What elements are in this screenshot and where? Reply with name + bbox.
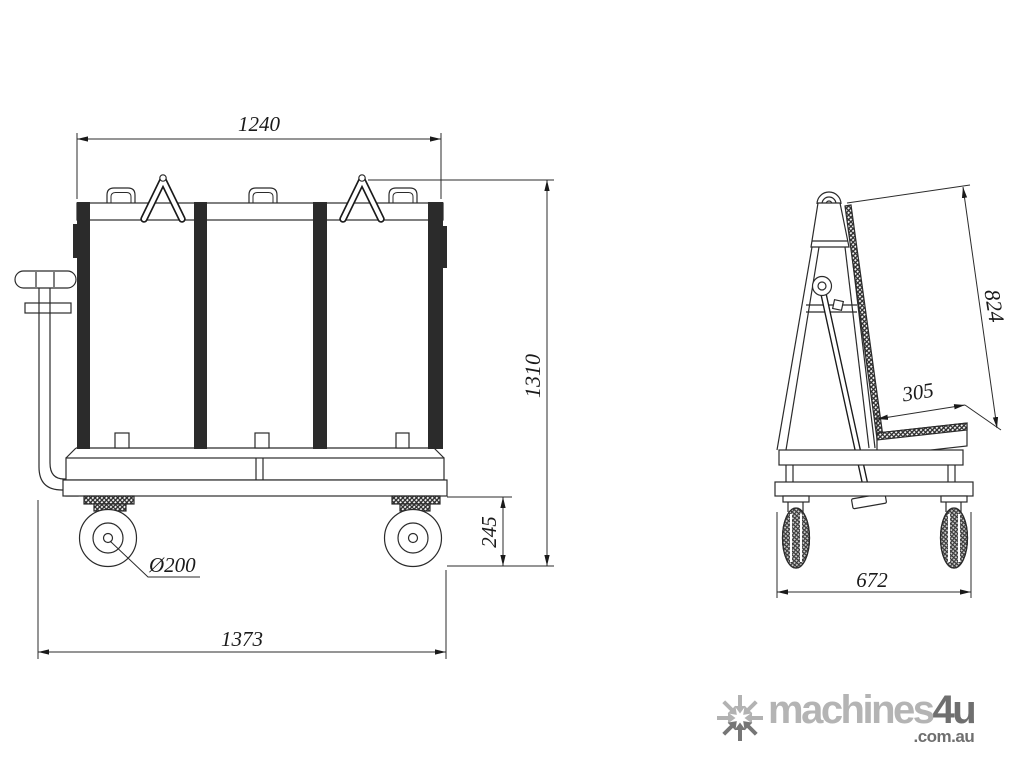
dim-side-width-value: 672: [856, 568, 888, 592]
caster-front-left: [80, 496, 137, 567]
dim-shelf-depth: 305: [877, 378, 965, 428]
brand-domain: .com.au: [913, 728, 974, 745]
pivot-pin: [813, 277, 832, 296]
dim-backrest-length-label: 824: [979, 288, 1009, 325]
side-base-frame: [775, 450, 973, 496]
dimension-annotations: 1240 1310 245 1373 Ø200: [38, 112, 1009, 659]
lifting-eye: [817, 192, 841, 204]
converging-arrows-star-icon: [714, 692, 766, 744]
wheel-side-left: [783, 496, 810, 568]
chassis-plate: [63, 480, 447, 496]
technical-drawing: 1240 1310 245 1373 Ø200: [0, 0, 1024, 768]
dim-overall-height-label: 1310: [520, 354, 545, 398]
dim-caster-height-label: 245: [477, 516, 501, 548]
dim-overall-length-label: 1373: [221, 627, 263, 651]
dim-overall-height: 1310: [368, 180, 554, 566]
top-rail: [77, 203, 443, 220]
dim-caster-height: 245: [447, 497, 512, 566]
padded-posts: [73, 202, 447, 449]
dim-body-width: 1240: [77, 112, 441, 199]
caster-front-right: [385, 496, 442, 567]
drawing-canvas: 1240 1310 245 1373 Ø200: [0, 0, 1024, 768]
side-view: [775, 192, 973, 568]
base-channel: [66, 433, 444, 480]
dim-wheel-diameter-label: Ø200: [148, 553, 196, 577]
brand-text: machines4u .com.au: [768, 690, 974, 730]
dim-body-width-label: 1240: [238, 112, 281, 136]
dim-shelf-depth-label: 305: [899, 378, 935, 407]
brand-accent: 4u: [933, 688, 975, 732]
front-view: [15, 175, 447, 567]
machines4u-watermark: machines4u .com.au: [714, 690, 1000, 760]
brand-main: machines: [768, 688, 933, 732]
wheel-side-right: [941, 496, 968, 568]
